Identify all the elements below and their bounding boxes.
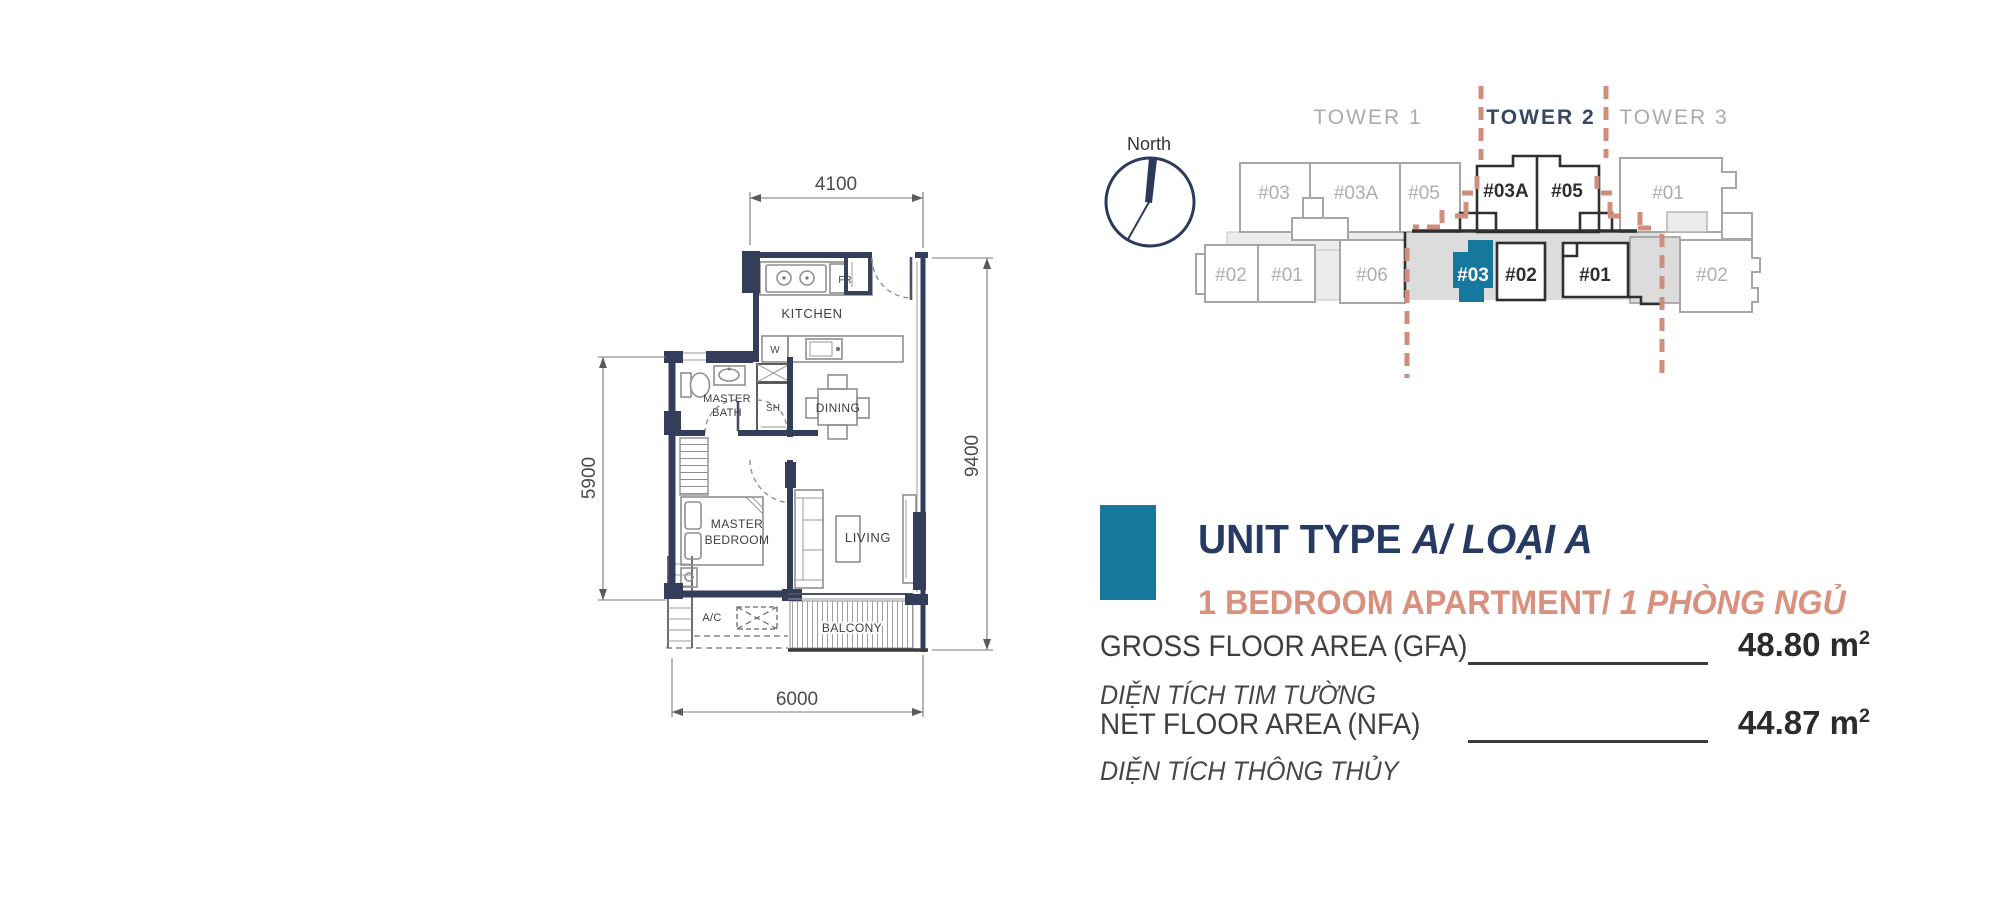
unit-type-subtitle: 1 BEDROOM APARTMENT/ 1 PHÒNG NGỦ	[1198, 584, 1846, 623]
unit-label: #02	[1696, 265, 1728, 286]
nightstand	[681, 568, 697, 587]
brochure-page: 4100 9400 5900 6000 KITCHEN FR W MASTER …	[0, 0, 2000, 900]
nfa-unit: m	[1820, 704, 1859, 741]
stove	[766, 265, 826, 292]
unit-label: #03A	[1483, 181, 1529, 202]
nfa-sup: 2	[1859, 705, 1870, 727]
washer-and-sink-counter	[762, 336, 903, 362]
unit-label: #02	[1505, 265, 1537, 286]
master-bath-label-1: MASTER	[703, 393, 751, 405]
ac-label: A/C	[702, 612, 721, 624]
gfa-label: GROSS FLOOR AREA (GFA)	[1100, 630, 1467, 664]
north-label: North	[1127, 134, 1171, 154]
gfa-rule	[1468, 662, 1708, 665]
master-bath-label-2: BATH	[712, 407, 742, 419]
tower2-label: TOWER 2	[1486, 106, 1595, 129]
gfa-unit: m	[1820, 626, 1859, 663]
shower-label: SH	[766, 403, 780, 414]
ac-condenser-unit	[737, 607, 777, 629]
gfa-sup: 2	[1859, 627, 1870, 649]
dim-left: 5900	[579, 457, 600, 499]
unit-type-title-main: UNIT TYPE	[1198, 516, 1412, 562]
bedroom-label-1: MASTER	[711, 517, 763, 531]
wardrobe	[680, 438, 708, 495]
tower3-label: TOWER 3	[1619, 106, 1728, 129]
unit-type-color-swatch	[1100, 505, 1156, 600]
unit-type-title: UNIT TYPE A/ LOẠI A	[1198, 516, 1593, 563]
bedroom-label-2: BEDROOM	[705, 533, 770, 547]
unit-label: #01	[1652, 183, 1684, 204]
dim-top: 4100	[815, 174, 857, 195]
floor-plan: 4100 9400 5900 6000 KITCHEN FR W MASTER …	[560, 160, 1010, 760]
gfa-vietnamese: DIỆN TÍCH TIM TƯỜNG	[1100, 680, 1376, 711]
sofa	[795, 490, 823, 588]
unit-label: #03A	[1334, 183, 1379, 204]
nfa-rule	[1468, 740, 1708, 743]
nfa-number: 44.87	[1738, 704, 1821, 741]
nfa-value: 44.87 m2	[1690, 704, 1870, 742]
site-plan: #03 #03A #05 #03A #05 #01 #02 #01 #06 #0…	[1100, 60, 1880, 400]
washer-label: W	[770, 345, 780, 356]
corridor-tower3	[1630, 237, 1680, 303]
unit-type-title-vietnamese: A/ LOẠI A	[1412, 516, 1592, 562]
bed	[681, 497, 763, 565]
dining-label: DINING	[816, 401, 860, 415]
bath-sink	[714, 366, 745, 385]
ac-ledge	[666, 556, 788, 648]
compass: North	[1106, 134, 1194, 246]
unit-label-highlighted: #03	[1457, 265, 1489, 286]
unit-label: #03	[1258, 183, 1290, 204]
balcony-label: BALCONY	[822, 621, 882, 635]
entry-door	[872, 257, 911, 300]
subtitle-vietnamese: 1 PHÒNG NGỦ	[1620, 584, 1846, 622]
nfa-vietnamese: DIỆN TÍCH THÔNG THỦY	[1100, 756, 1399, 787]
dim-bottom: 6000	[776, 689, 818, 710]
corridor-gap	[1315, 250, 1340, 300]
tower1-label: TOWER 1	[1313, 106, 1422, 129]
unit-label: #05	[1551, 181, 1583, 202]
unit-label: #06	[1356, 265, 1388, 286]
subtitle-main: 1 BEDROOM APARTMENT/	[1198, 584, 1620, 622]
kitchen-label: KITCHEN	[781, 306, 842, 321]
unit-label: #01	[1579, 265, 1611, 286]
gfa-value: 48.80 m2	[1690, 626, 1870, 664]
gfa-number: 48.80	[1738, 626, 1821, 663]
unit-label: #02	[1215, 265, 1247, 286]
unit-label: #05	[1408, 183, 1440, 204]
shaft-box	[757, 364, 790, 382]
nfa-label: NET FLOOR AREA (NFA)	[1100, 708, 1420, 742]
living-label: LIVING	[845, 530, 891, 545]
unit-label: #01	[1271, 265, 1303, 286]
dim-right: 9400	[962, 435, 983, 477]
fridge-label: FR	[838, 275, 851, 286]
